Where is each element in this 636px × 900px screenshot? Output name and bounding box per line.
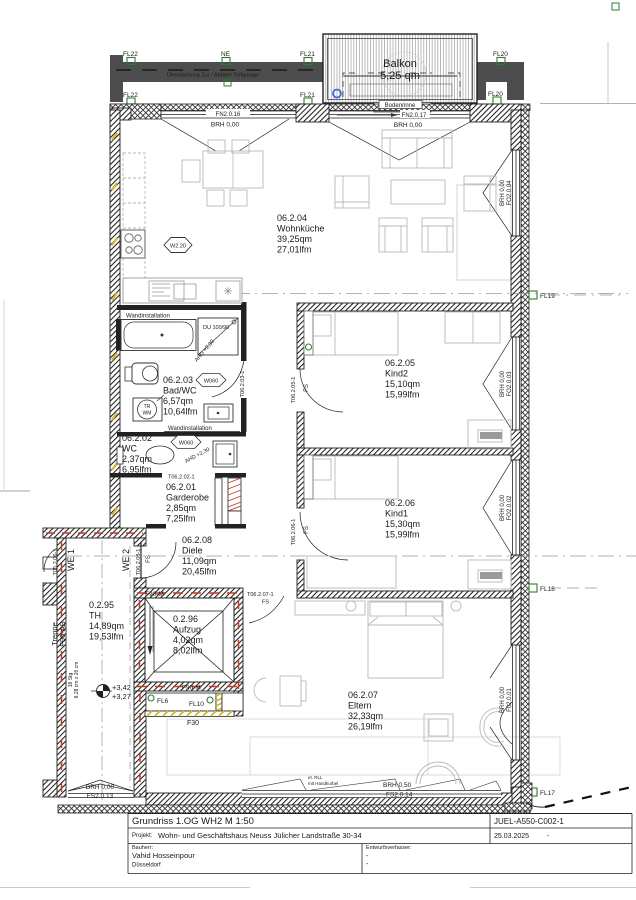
svg-text:F90-M: F90-M: [145, 591, 164, 598]
svg-text:BRH 0,00: BRH 0,00: [500, 370, 506, 397]
svg-text:T06.2.08-1: T06.2.08-1: [136, 549, 142, 576]
svg-text:WE 1: WE 1: [66, 549, 76, 571]
svg-text:06.2.01: 06.2.01: [166, 482, 196, 492]
svg-text:06.2.07: 06.2.07: [348, 690, 378, 700]
svg-text:Kind2: Kind2: [385, 369, 408, 379]
svg-text:TR: TR: [144, 404, 151, 410]
svg-text:Düsseldorf: Düsseldorf: [132, 863, 161, 869]
svg-text:BRH 0,00: BRH 0,00: [500, 179, 506, 206]
svg-text:W060: W060: [204, 379, 218, 385]
svg-text:F90-M: F90-M: [182, 685, 201, 692]
svg-text:Aufzug: Aufzug: [173, 625, 201, 635]
svg-text:0.2.95: 0.2.95: [89, 600, 114, 610]
svg-text:14,89qm: 14,89qm: [89, 621, 124, 631]
svg-text:06.2.04: 06.2.04: [277, 213, 307, 223]
svg-text:BRH 0,50: BRH 0,50: [383, 782, 412, 789]
svg-text:FS: FS: [304, 384, 310, 392]
svg-text:15,99lfm: 15,99lfm: [385, 530, 420, 540]
svg-text:39,25qm: 39,25qm: [277, 234, 312, 244]
svg-text:W060: W060: [179, 441, 193, 447]
svg-text:TH: TH: [89, 611, 101, 621]
svg-text:F90-AB: F90-AB: [58, 621, 67, 646]
svg-text:15,10qm: 15,10qm: [385, 379, 420, 389]
svg-text:Bodenrinne: Bodenrinne: [385, 103, 416, 109]
svg-text:19,53lfm: 19,53lfm: [89, 632, 124, 642]
svg-text:FS: FS: [146, 555, 152, 563]
svg-text:FL17: FL17: [540, 790, 555, 797]
svg-text:FL19: FL19: [540, 293, 555, 300]
svg-text:W2.20: W2.20: [170, 244, 186, 250]
svg-text:T06.2.06-1: T06.2.06-1: [291, 519, 297, 546]
svg-text:BRH 0,00: BRH 0,00: [500, 494, 506, 521]
svg-text:Grundriss 1.OG WH2 M 1:50: Grundriss 1.OG WH2 M 1:50: [132, 816, 254, 827]
svg-text:FN2.0.16: FN2.0.16: [216, 112, 241, 118]
svg-text:Überdachung Zur / Abfahrt Tief: Überdachung Zur / Abfahrt Tiefgarage: [167, 72, 259, 79]
svg-text:6,95lfm: 6,95lfm: [122, 465, 152, 475]
svg-text:27,01lfm: 27,01lfm: [277, 245, 312, 255]
svg-text:15,99lfm: 15,99lfm: [385, 390, 420, 400]
svg-text:FO2.0.02: FO2.0.02: [507, 495, 513, 521]
svg-text:FL10: FL10: [189, 701, 204, 708]
svg-text:0.2.96: 0.2.96: [173, 614, 198, 624]
svg-text:WE 2: WE 2: [121, 549, 131, 571]
svg-text:FL6: FL6: [157, 698, 169, 705]
svg-text:2,37qm: 2,37qm: [122, 454, 152, 464]
svg-text:FO2.0.04: FO2.0.04: [507, 180, 513, 206]
svg-text:+3,42: +3,42: [112, 683, 131, 692]
svg-text:FN2.0.17: FN2.0.17: [402, 113, 427, 119]
svg-text:15,30qm: 15,30qm: [385, 519, 420, 529]
svg-text:FL18: FL18: [540, 586, 555, 593]
svg-text:BRH 0,00: BRH 0,00: [500, 686, 506, 713]
svg-text:DU 100/90: DU 100/90: [203, 325, 229, 331]
svg-text:Garderobe: Garderobe: [166, 493, 209, 503]
svg-text:11,09qm: 11,09qm: [182, 556, 216, 566]
svg-text:8,28 cm x 26 cm: 8,28 cm x 26 cm: [74, 662, 80, 699]
svg-text:7,25lfm: 7,25lfm: [166, 514, 196, 524]
svg-text:Wohnküche: Wohnküche: [277, 224, 324, 234]
svg-text:06.2.03: 06.2.03: [163, 375, 193, 385]
svg-text:06.2.08: 06.2.08: [182, 535, 212, 545]
svg-text:4,02qm: 4,02qm: [173, 635, 203, 645]
svg-text:et. RLL: et. RLL: [308, 775, 323, 780]
svg-text:06.2.06: 06.2.06: [385, 498, 415, 508]
svg-text:T06.2.02-1: T06.2.02-1: [168, 475, 195, 481]
svg-text:BRH 0,00: BRH 0,00: [394, 122, 423, 129]
svg-text:6,57qm: 6,57qm: [163, 396, 193, 406]
svg-text:T06.2.03-1: T06.2.03-1: [240, 371, 246, 398]
svg-text:Wandinstallation: Wandinstallation: [126, 314, 170, 320]
svg-text:Diele: Diele: [182, 546, 203, 556]
svg-text:Projekt:: Projekt:: [132, 833, 153, 839]
svg-text:FO2.0.03: FO2.0.03: [507, 371, 513, 397]
svg-text:F02.0.01: F02.0.01: [507, 687, 513, 711]
svg-text:T05.2.06-1: T05.2.06-1: [53, 549, 59, 576]
svg-text:BRH 0,00: BRH 0,00: [211, 122, 240, 129]
svg-text:mit Handkurbel: mit Handkurbel: [308, 781, 338, 786]
svg-text:FS: FS: [304, 526, 310, 534]
svg-text:FS2.0.14: FS2.0.14: [386, 792, 413, 799]
svg-text:Balkon: Balkon: [383, 58, 417, 70]
svg-text:8,02lfm: 8,02lfm: [173, 646, 203, 656]
svg-text:WC: WC: [122, 444, 137, 454]
svg-text:26,19lfm: 26,19lfm: [348, 722, 383, 732]
svg-text:2,85qm: 2,85qm: [166, 503, 196, 513]
svg-text:Vahid Hosseinpour: Vahid Hosseinpour: [132, 851, 195, 860]
svg-text:10,64lfm: 10,64lfm: [163, 407, 198, 417]
svg-text:06.2.05: 06.2.05: [385, 358, 415, 368]
svg-text:20,45lfm: 20,45lfm: [182, 567, 217, 577]
svg-text:Eltern: Eltern: [348, 701, 372, 711]
svg-text:Bad/WC: Bad/WC: [163, 386, 197, 396]
svg-text:FS2.0.13: FS2.0.13: [87, 793, 114, 800]
svg-text:BRH 0,00: BRH 0,00: [86, 784, 115, 791]
svg-text:FS: FS: [262, 600, 269, 606]
svg-text:WM: WM: [143, 411, 152, 417]
svg-text:06.2.02: 06.2.02: [122, 433, 152, 443]
svg-text:Wohn- und Geschäftshaus Neuss: Wohn- und Geschäftshaus Neuss Jülicher L…: [158, 831, 362, 840]
svg-text:Entwurfsverfasser:: Entwurfsverfasser:: [366, 845, 412, 851]
svg-text:F30: F30: [187, 720, 199, 727]
svg-text:32,33qm: 32,33qm: [348, 711, 383, 721]
svg-text:T06.2.07-1: T06.2.07-1: [247, 592, 274, 598]
svg-text:T06.2.05-1: T06.2.05-1: [291, 377, 297, 404]
svg-text:+3,27: +3,27: [112, 692, 131, 701]
svg-text:Wandinstallation: Wandinstallation: [168, 426, 212, 432]
svg-text:25.03.2025: 25.03.2025: [494, 833, 529, 840]
svg-text:JUEL-A550-C002-1: JUEL-A550-C002-1: [494, 817, 564, 826]
svg-text:Kind1: Kind1: [385, 509, 408, 519]
